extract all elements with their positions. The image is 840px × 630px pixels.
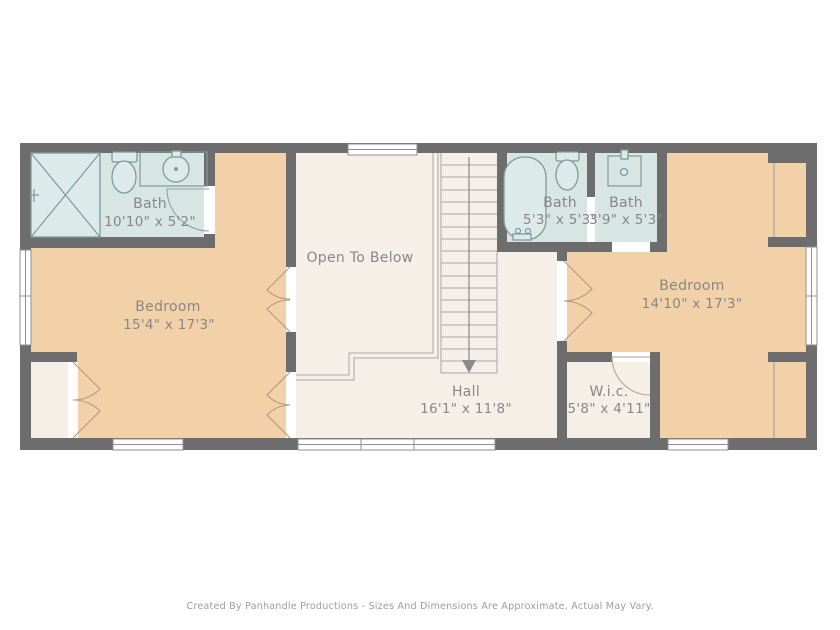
- wall-bath-small-bottom-a: [595, 242, 612, 252]
- wall-bath-divider: [587, 153, 595, 197]
- footer-credit: Created By Panhandle Productions - Sizes…: [187, 601, 654, 612]
- wall-closet-left-top: [20, 352, 77, 362]
- wall-alcove-bottomright: [768, 352, 806, 362]
- bedroom-right-dims: 14'10" x 17'3": [642, 296, 743, 312]
- bedroom-right-label: Bedroom: [659, 278, 724, 294]
- bath-left-dims: 10'10" x 5'2": [104, 214, 196, 230]
- floor-plan: Bath 10'10" x 5'2" Bedroom 15'4" x 17'3"…: [0, 0, 840, 630]
- wall-alcove-topright-b: [768, 237, 806, 247]
- wall-wic-right: [650, 352, 660, 438]
- wic-floor: [567, 362, 650, 438]
- hall-dims: 16'1" x 11'8": [420, 401, 512, 417]
- wic-dims: 5'8" x 4'11": [568, 401, 651, 417]
- bath-small-label: Bath: [609, 195, 643, 211]
- opening-bath-left: [204, 186, 215, 234]
- wall-alcove-topright-a: [768, 153, 806, 163]
- toilet-icon: [556, 152, 579, 190]
- opening-bath-small: [612, 242, 650, 252]
- hall-label: Hall: [452, 384, 480, 400]
- bath-small-dims: 3'9" x 5'3": [589, 212, 663, 228]
- bath-left-label: Bath: [133, 196, 167, 212]
- bath-middle-dims: 5'3" x 5'3": [523, 212, 597, 228]
- wall-bath-left-bottom: [20, 237, 215, 248]
- bath-middle-label: Bath: [543, 195, 577, 211]
- floor-plan-page: Bath 10'10" x 5'2" Bedroom 15'4" x 17'3"…: [0, 0, 840, 630]
- bedroom-left-dims: 15'4" x 17'3": [123, 317, 215, 333]
- bedroom-left-floor-upper: [215, 153, 286, 248]
- open-to-below-label: Open To Below: [306, 250, 413, 266]
- shower-icon: [29, 153, 100, 237]
- toilet-icon: [112, 152, 137, 193]
- wall-bath-small-right: [657, 143, 667, 252]
- wic-label: W.i.c.: [590, 384, 629, 400]
- closet-left-floor: [31, 362, 68, 438]
- bedroom-left-label: Bedroom: [135, 299, 200, 315]
- wall-bath-middle-bottom: [497, 242, 597, 252]
